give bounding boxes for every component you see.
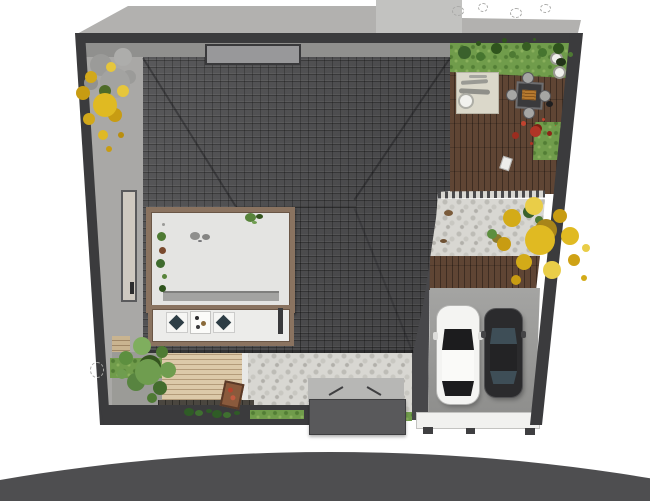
terrace-hedge-row — [458, 46, 471, 59]
bush-pair — [212, 410, 222, 418]
red-shrub — [530, 126, 541, 137]
side-mirror — [521, 331, 526, 338]
stool — [522, 72, 534, 84]
table-tray — [522, 90, 537, 101]
white-pot — [553, 66, 566, 79]
side-gate-panel — [121, 190, 137, 302]
gate-handle — [130, 282, 134, 294]
roof-seam — [300, 212, 301, 352]
engawa-chair-pad — [213, 312, 235, 333]
deck-edge-strip — [242, 352, 248, 404]
bollard — [466, 428, 475, 434]
hedge-strip — [250, 410, 304, 419]
curb — [416, 412, 540, 429]
site-plan-rendering — [0, 0, 650, 501]
engawa-post — [278, 308, 283, 334]
street-shrub-sketch — [452, 6, 464, 16]
tabletop-item — [196, 325, 200, 329]
pet-sculptures — [190, 232, 200, 240]
tabletop-item — [201, 321, 206, 326]
stool — [523, 107, 535, 119]
black-car — [485, 309, 522, 397]
lantern-detail — [230, 395, 236, 401]
yellow-tree-left — [93, 93, 117, 117]
green-tree-left — [135, 359, 161, 385]
side-mirror — [433, 332, 438, 340]
dark-plant-pot — [546, 101, 553, 107]
shrub-olive — [492, 234, 502, 243]
sketch-plant — [90, 362, 104, 378]
courtyard-corner-plant — [245, 213, 256, 222]
windshield — [442, 329, 474, 350]
car-roof — [442, 350, 474, 381]
skylight-frame — [205, 44, 301, 65]
car-roof — [490, 344, 517, 371]
courtyard-bench — [163, 291, 279, 301]
roof-eave-shadow — [143, 350, 413, 353]
lounge-chair — [216, 315, 232, 331]
slab-streak — [469, 75, 487, 78]
engawa-chair-pad — [166, 312, 188, 333]
street-shrub-sketch — [478, 3, 488, 12]
dark-plant — [556, 58, 566, 66]
engawa-table — [190, 311, 211, 334]
tile-edge-path — [438, 191, 545, 199]
entry-canopy — [309, 399, 406, 435]
bollard — [423, 427, 433, 434]
side-mirror — [481, 331, 486, 338]
street-band-right — [462, 14, 583, 33]
yellow-tree-right — [525, 225, 555, 255]
courtyard-potted-plants — [157, 232, 166, 241]
water-basin — [458, 93, 474, 109]
bollard — [525, 428, 535, 435]
lounge-chair — [169, 315, 185, 331]
tabletop-item — [195, 316, 199, 320]
timber-deck-strip — [428, 256, 540, 290]
rear-window — [442, 381, 474, 396]
shrub — [523, 206, 535, 218]
street-shrub-sketch — [540, 4, 551, 13]
white-car — [437, 306, 479, 404]
curved-road — [0, 452, 650, 501]
rear-window — [490, 371, 517, 384]
street-band — [73, 4, 378, 35]
windshield — [490, 328, 517, 344]
street-shrub-sketch — [510, 8, 522, 18]
stool — [506, 89, 518, 101]
lantern-detail — [228, 387, 234, 393]
stepping-stone — [444, 210, 453, 216]
street-band-light — [376, 0, 462, 33]
bush-pair — [184, 408, 194, 416]
